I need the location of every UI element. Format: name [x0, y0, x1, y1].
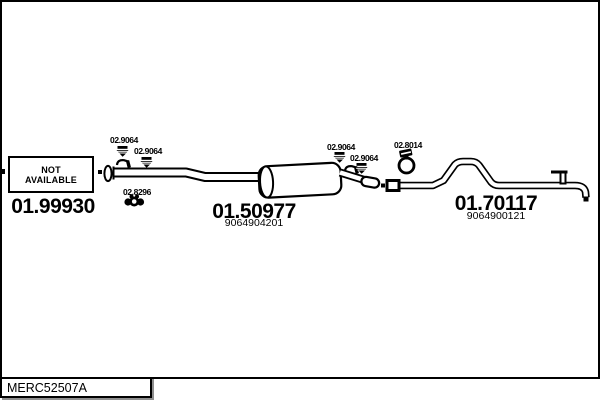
hanger-bracket-icon: [551, 171, 568, 184]
frame-stub: [1, 169, 5, 174]
diagram-frame: NOT AVAILABLE 01.99930 01.50977 90649042…: [0, 0, 600, 379]
not-available-line2: AVAILABLE: [25, 175, 77, 185]
catalog-page: { "footer": { "reference_code": "MERC525…: [0, 0, 600, 400]
fitting-code-ring-clamp[interactable]: 02.8014: [386, 141, 430, 150]
fitting-code-clamp-1[interactable]: 02.9064: [102, 136, 146, 145]
oe-number-muffler: 9064904201: [208, 218, 300, 229]
hanger-hook-icon: [117, 160, 129, 167]
pipe-clamp-icon: [141, 157, 153, 168]
fitting-code-clamp-3[interactable]: 02.9064: [319, 143, 363, 152]
reference-code-box: MERC52507A: [0, 377, 152, 398]
front-pipe-drawing: [98, 160, 264, 181]
ring-clamp-icon: [399, 148, 414, 173]
fitting-code-clamp-2[interactable]: 02.9064: [126, 147, 170, 156]
reference-code: MERC52507A: [7, 381, 87, 395]
fitting-code-rubber-mount[interactable]: 02.8296: [115, 188, 159, 197]
not-available-box: NOT AVAILABLE: [8, 156, 94, 193]
not-available-line1: NOT: [41, 165, 61, 175]
fitting-code-clamp-4[interactable]: 02.9064: [342, 154, 386, 163]
part-number-front-pipe[interactable]: 01.99930: [6, 196, 100, 217]
oe-number-tailpipe: 9064900121: [450, 211, 542, 222]
